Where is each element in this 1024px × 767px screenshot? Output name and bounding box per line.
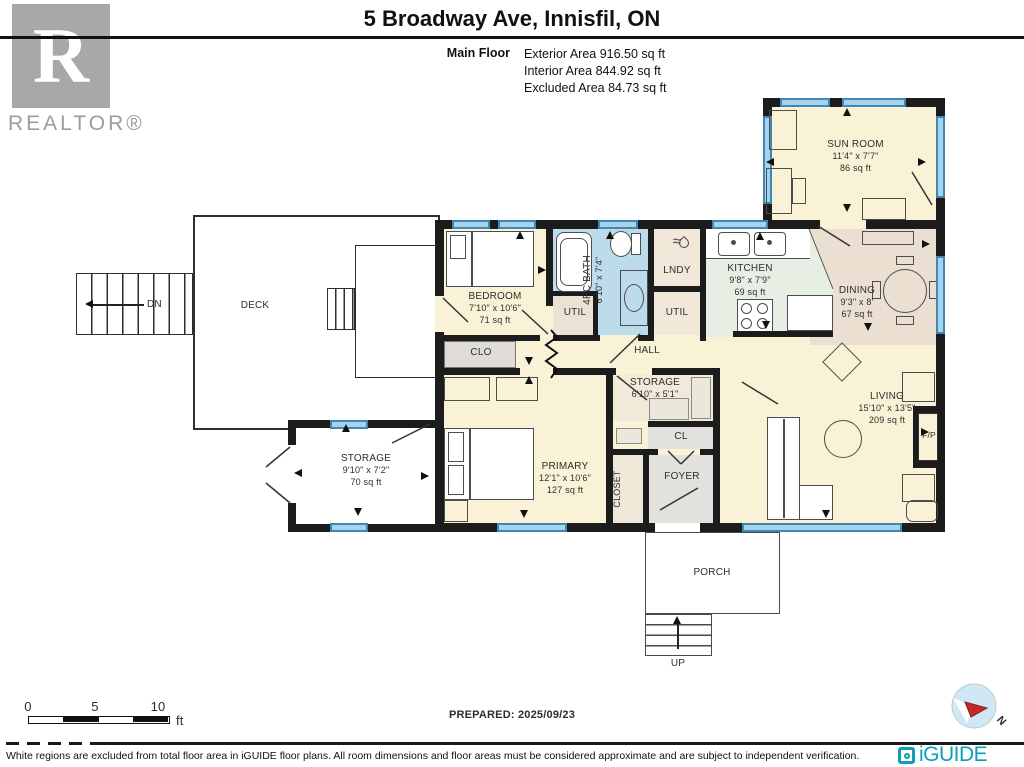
bed-line [469, 429, 471, 499]
storage-shelf [649, 398, 689, 420]
side-chair [902, 474, 935, 502]
burner [757, 303, 768, 314]
door-arrow [538, 266, 546, 274]
foyer-label: FOYER [642, 470, 722, 483]
sofa-line [783, 419, 785, 518]
bed-line [471, 232, 473, 286]
window [780, 98, 830, 107]
burner [741, 303, 752, 314]
porch-label: PORCH [672, 566, 752, 579]
util2-label: UTIL [652, 306, 702, 319]
disclaimer-text: White regions are excluded from total fl… [6, 750, 876, 762]
wall [444, 335, 540, 341]
util1-label: UTIL [550, 306, 600, 319]
wall [733, 331, 833, 337]
door-arrow [354, 508, 362, 516]
window [452, 220, 490, 229]
door-arrow [843, 108, 851, 116]
pillow [448, 432, 464, 462]
wall [652, 368, 720, 375]
door-arrow [606, 231, 614, 239]
wall [553, 368, 606, 375]
door-arrow [822, 510, 830, 518]
dresser [444, 377, 490, 401]
door-arrow [843, 204, 851, 212]
wall [700, 449, 720, 455]
door-arrow [294, 469, 302, 477]
door-arrow [756, 232, 764, 240]
deck-label: DECK [225, 299, 285, 312]
living-label: LIVING 15'10" x 13'5" 209 sq ft [822, 390, 952, 427]
door-arrow [421, 472, 429, 480]
lndy-icons: ≈ [656, 232, 698, 252]
burner [741, 318, 752, 329]
compass-north-label: N [991, 711, 1011, 731]
compass-icon [950, 682, 998, 730]
footer-rule [94, 742, 1024, 745]
window [742, 523, 902, 532]
scale-tick-5: 5 [89, 698, 101, 715]
wall [648, 229, 654, 341]
wall [643, 455, 649, 523]
deck-small-steps [327, 288, 355, 330]
porch-up-label: UP [662, 657, 694, 670]
window [598, 220, 638, 229]
door-arrow [520, 510, 528, 518]
wall [648, 421, 713, 427]
window [497, 523, 567, 532]
deck-dn-arrow-line [92, 304, 144, 306]
iguide-camera-icon [898, 747, 915, 764]
faucet [731, 240, 736, 245]
dining-label: DINING 9'3" x 8' 67 sq ft [812, 284, 902, 321]
hall-label: HALL [612, 344, 682, 357]
lndy-label: LNDY [652, 264, 702, 277]
window [330, 523, 368, 532]
window [498, 220, 536, 229]
window [936, 256, 945, 334]
chair [792, 178, 806, 204]
pillow [450, 235, 466, 259]
door-arrow [918, 158, 926, 166]
interior-area: Interior Area 844.92 sq ft [524, 63, 666, 80]
wall [435, 368, 520, 375]
window [842, 98, 906, 107]
prepared-date: PREPARED: 2025/09/23 [392, 708, 632, 723]
door-arrow [525, 376, 533, 384]
pillow [448, 465, 464, 495]
room-foyer-floor [649, 455, 713, 523]
cl-label: CL [650, 430, 712, 443]
primary-label: PRIMARY 12'1" x 10'6" 127 sq ft [505, 460, 625, 497]
scale-bar [28, 716, 170, 724]
deck-dn-arrow-head [85, 300, 93, 308]
scale-tick-0: 0 [22, 698, 34, 715]
door-opening [655, 523, 700, 532]
wall [606, 368, 616, 375]
floor-plan-page: R REALTOR® 5 Broadway Ave, Innisfil, ON … [0, 0, 1024, 767]
door-arrow [342, 424, 350, 432]
wall [654, 286, 700, 292]
storage-mid-label: STORAGE 6'10" x 5'1" [595, 376, 715, 401]
dresser [444, 500, 468, 522]
kitchen-label: KITCHEN 9'8" x 7'9" 69 sq ft [700, 262, 800, 299]
faucet [767, 240, 772, 245]
scale-tick-10: 10 [148, 698, 168, 715]
porch-up-arrow-line [677, 621, 679, 649]
window [712, 220, 768, 229]
door-arrow [922, 240, 930, 248]
door-arrow [864, 323, 872, 331]
toilet-tank [631, 233, 641, 255]
header-rule [0, 36, 1024, 39]
page-title: 5 Broadway Ave, Innisfil, ON [0, 6, 1024, 32]
iguide-logo: iGUIDE [898, 744, 1024, 766]
scale-segment [63, 717, 99, 722]
deck-dn-label: DN [147, 298, 177, 311]
exterior-area: Exterior Area 916.50 sq ft [524, 46, 666, 63]
bedroom-label: BEDROOM 7'10" x 10'6" 71 sq ft [440, 290, 550, 327]
door-arrow [525, 357, 533, 365]
scale-segment [133, 717, 168, 722]
sun-room-label: SUN ROOM 11'4" x 7'7" 86 sq ft [788, 138, 923, 175]
footer-rule-dashed [6, 742, 94, 745]
scale-unit: ft [176, 712, 196, 729]
deck-landing [355, 245, 437, 378]
porch-up-arrow-head [673, 616, 681, 624]
realtor-wordmark: REALTOR® [8, 112, 148, 136]
heat-squiggle-icon: ≈ [656, 232, 698, 252]
door-opening [820, 220, 866, 229]
door-arrow [766, 158, 774, 166]
storage-shelf [616, 428, 642, 444]
table [862, 198, 906, 220]
excluded-area: Excluded Area 84.73 sq ft [524, 80, 666, 97]
floor-label: Main Floor [395, 46, 510, 60]
armchair [906, 500, 938, 522]
door-arrow [921, 428, 929, 436]
storage-left-label: STORAGE 9'10" x 7'2" 70 sq ft [296, 452, 436, 489]
wall [553, 335, 600, 341]
dining-bench [862, 231, 914, 245]
door-arrow [516, 231, 524, 239]
iguide-wordmark: iGUIDE [919, 743, 987, 767]
door-arrow [762, 321, 770, 329]
window [936, 116, 945, 198]
fireplace-label: F/P [913, 430, 945, 441]
dining-chair [896, 256, 914, 265]
area-stats: Exterior Area 916.50 sq ft Interior Area… [524, 46, 666, 97]
clo-label: CLO [446, 346, 516, 359]
